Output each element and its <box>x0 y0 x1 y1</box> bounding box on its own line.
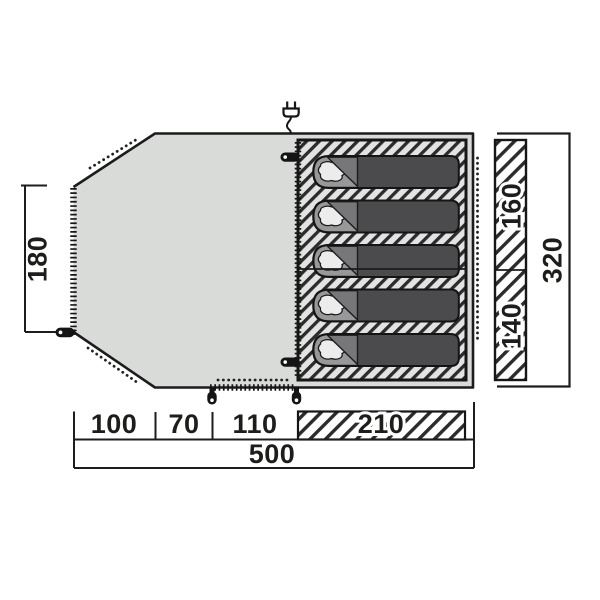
zipper-pull-icon-cabin-bottom <box>281 358 300 367</box>
zipper-pull-icon-cabin-top <box>281 153 300 162</box>
sleeping-bag <box>313 156 459 188</box>
floorplan-svg: 180 160 140 320 100 70 110 210 500 <box>0 0 600 600</box>
dim-320-label: 320 <box>538 237 568 284</box>
dim-140-label: 140 <box>497 303 527 350</box>
dim-210-label: 210 <box>358 409 405 439</box>
dim-70-label: 70 <box>168 409 199 439</box>
sleeping-bag <box>313 245 459 277</box>
sleeping-bag <box>313 290 459 322</box>
sleeping-bag <box>313 201 459 233</box>
tent-floorplan-diagram: 180 160 140 320 100 70 110 210 500 <box>0 0 600 600</box>
zipper-pull-icon-left <box>56 328 76 338</box>
sleeping-bag <box>313 334 459 366</box>
dim-110-label: 110 <box>232 409 277 439</box>
dim-180-label: 180 <box>23 236 53 283</box>
dim-160-label: 160 <box>497 183 527 230</box>
power-plug-icon <box>284 102 299 134</box>
dimension-bedroom-bar: 160 140 <box>495 140 527 380</box>
dim-100-label: 100 <box>91 409 138 439</box>
dimension-porch-height: 180 <box>21 186 56 333</box>
dim-500-label: 500 <box>249 439 296 469</box>
